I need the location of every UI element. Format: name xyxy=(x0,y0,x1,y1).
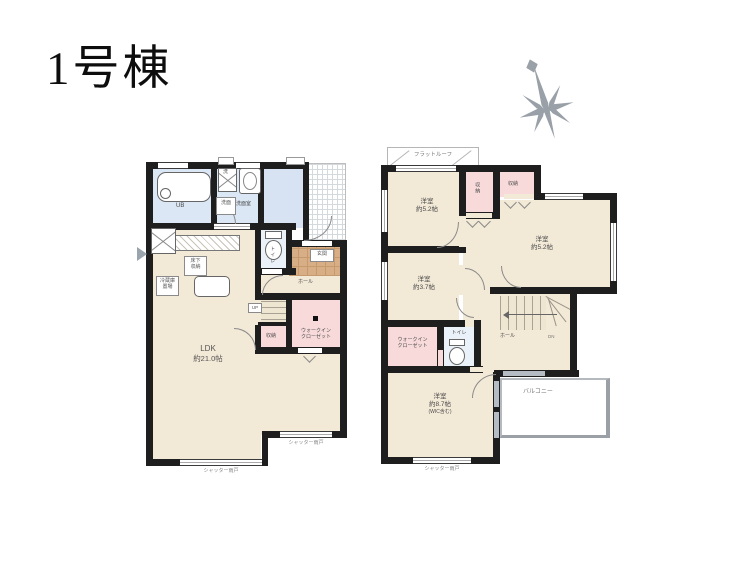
hall-label-1f: ホール xyxy=(298,279,313,285)
fridge-label: 冷蔵庫 置場 xyxy=(156,276,179,296)
stairs-dn-label: DN xyxy=(548,334,555,340)
ldk-label: LDK 約21.0帖 xyxy=(168,344,248,363)
wall xyxy=(381,246,466,253)
window xyxy=(610,223,617,281)
door-gap xyxy=(262,269,282,274)
window xyxy=(381,262,388,300)
closet-a-label: 収納 xyxy=(474,182,480,194)
equipment-box xyxy=(286,157,305,165)
ldk-name: LDK xyxy=(168,344,248,354)
wall xyxy=(340,240,347,438)
hall-label-2f: ホール xyxy=(500,333,515,339)
wall xyxy=(570,290,577,377)
wall xyxy=(146,162,153,466)
blue-room-floor xyxy=(262,167,306,228)
door-gap xyxy=(459,216,466,247)
bedroom2-size: 約5.2帖 xyxy=(520,244,564,252)
shutter-label: シャッター雨戸 xyxy=(190,468,252,474)
toilet-label-2f: トイレ xyxy=(446,330,472,336)
equipment-box xyxy=(218,157,234,165)
window xyxy=(280,431,332,438)
washroom-label: 洗面室 xyxy=(236,201,251,207)
underfloor-line2: 収納 xyxy=(185,265,206,271)
window xyxy=(180,459,262,466)
toilet-bowl-icon-2f xyxy=(449,347,465,365)
refrigerator-space-icon xyxy=(151,228,176,254)
kitchen-island-icon xyxy=(194,276,230,297)
wall xyxy=(262,431,268,466)
door-gap xyxy=(470,367,494,372)
closet-label-1f: 収納 xyxy=(266,333,276,339)
flat-roof-label: フラットルーフ xyxy=(402,152,464,159)
bedroom1-label: 洋室 約5.2帖 xyxy=(405,198,449,214)
bedroom2-name: 洋室 xyxy=(520,236,564,244)
ldk-dining-floor xyxy=(258,350,344,435)
balcony-sash xyxy=(494,412,499,438)
door-gap xyxy=(302,241,332,246)
window xyxy=(158,162,188,169)
toilet-tank-icon-2f xyxy=(449,339,465,346)
vent-marker xyxy=(137,247,147,261)
wall xyxy=(493,165,500,219)
closet-a-floor xyxy=(463,172,496,216)
fridge-line2: 置場 xyxy=(157,285,178,291)
toilet-label-1f: トイレ xyxy=(269,246,275,264)
bedroom3-name: 洋室 xyxy=(402,276,446,284)
vanity-label: 洗面 xyxy=(216,197,236,215)
balcony-sash xyxy=(503,371,545,376)
stairs-up-label: UP xyxy=(248,303,262,313)
bedroom1-size: 約5.2帖 xyxy=(405,206,449,214)
entrance-label: 玄関 xyxy=(310,249,334,262)
wall xyxy=(286,293,292,354)
bedroom3-size: 約3.7帖 xyxy=(402,284,446,292)
wall xyxy=(534,165,541,200)
bedroom2-label: 洋室 約5.2帖 xyxy=(520,236,564,252)
wall xyxy=(286,223,292,275)
window xyxy=(381,190,388,232)
toilet-tank-icon xyxy=(265,231,282,239)
underfloor-storage-label: 床下 収納 xyxy=(184,256,207,276)
wall xyxy=(381,320,465,327)
wic-post-icon xyxy=(313,316,318,321)
wic-label-line2: クローゼット xyxy=(294,334,338,340)
wic2f-line2: クローゼット xyxy=(390,343,435,349)
balcony-label: バルコニー xyxy=(516,389,560,397)
sliding-door xyxy=(214,223,250,230)
wall xyxy=(490,287,617,294)
balcony xyxy=(500,378,610,438)
closet-b-label: 収納 xyxy=(508,181,518,187)
washer-label: 洗 xyxy=(223,169,228,175)
wic-label-1f: ウォークイン クローゼット xyxy=(294,328,338,341)
window xyxy=(413,457,471,464)
sink-bowl-icon xyxy=(243,172,257,190)
stair-direction-arrowhead xyxy=(503,311,509,319)
wic-label-2f: ウォークイン クローゼット xyxy=(390,337,435,350)
door-gap xyxy=(438,350,443,366)
compass-icon xyxy=(510,58,582,144)
shutter-label: シャッター雨戸 xyxy=(415,466,469,472)
ldk-size: 約21.0帖 xyxy=(168,354,248,363)
stair-direction-line xyxy=(507,314,557,315)
window xyxy=(396,165,456,172)
bedroom4-label: 洋室 約8.7帖 (WIC含む) xyxy=(408,393,472,416)
bathtub-drain-icon xyxy=(160,188,171,199)
bath-label: UB xyxy=(176,203,184,211)
bedroom4-name: 洋室 xyxy=(408,393,472,401)
page-title: 1号棟 xyxy=(46,40,173,99)
window xyxy=(545,193,583,200)
wall xyxy=(255,223,261,298)
wall xyxy=(381,366,483,373)
wall xyxy=(474,320,481,373)
bedroom3-label: 洋室 約3.7帖 xyxy=(402,276,446,292)
bedroom1-name: 洋室 xyxy=(405,198,449,206)
floorplan-canvas: 1号棟 xyxy=(0,0,751,563)
bedroom4-note: (WIC含む) xyxy=(408,409,472,415)
shutter-label: シャッター雨戸 xyxy=(282,440,330,446)
